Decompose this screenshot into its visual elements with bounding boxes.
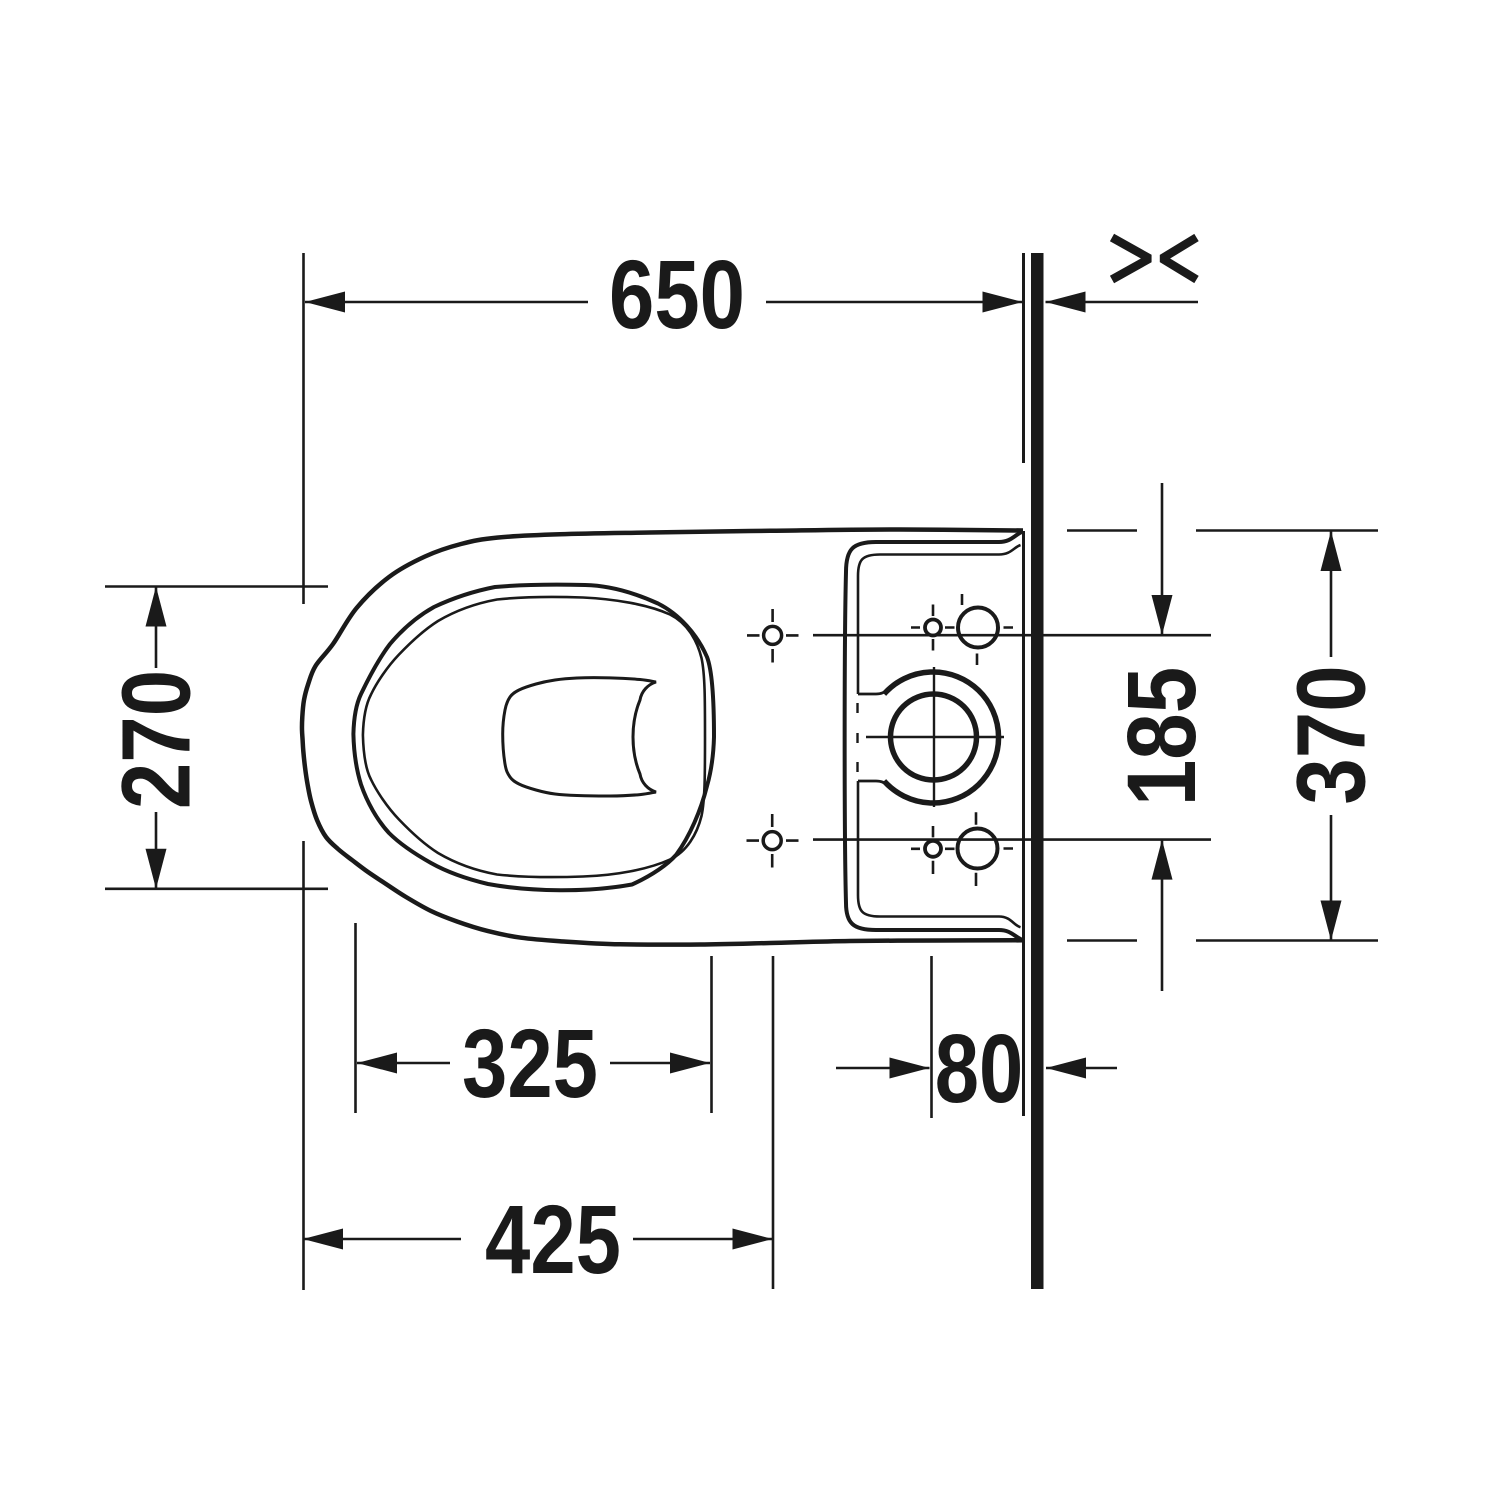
svg-text:370: 370 bbox=[1278, 665, 1386, 804]
svg-text:425: 425 bbox=[485, 1185, 621, 1293]
svg-text:185: 185 bbox=[1108, 667, 1216, 806]
svg-text:325: 325 bbox=[462, 1009, 598, 1117]
svg-text:270: 270 bbox=[103, 670, 211, 809]
svg-text:80: 80 bbox=[935, 1015, 1023, 1123]
svg-text:650: 650 bbox=[609, 240, 745, 348]
